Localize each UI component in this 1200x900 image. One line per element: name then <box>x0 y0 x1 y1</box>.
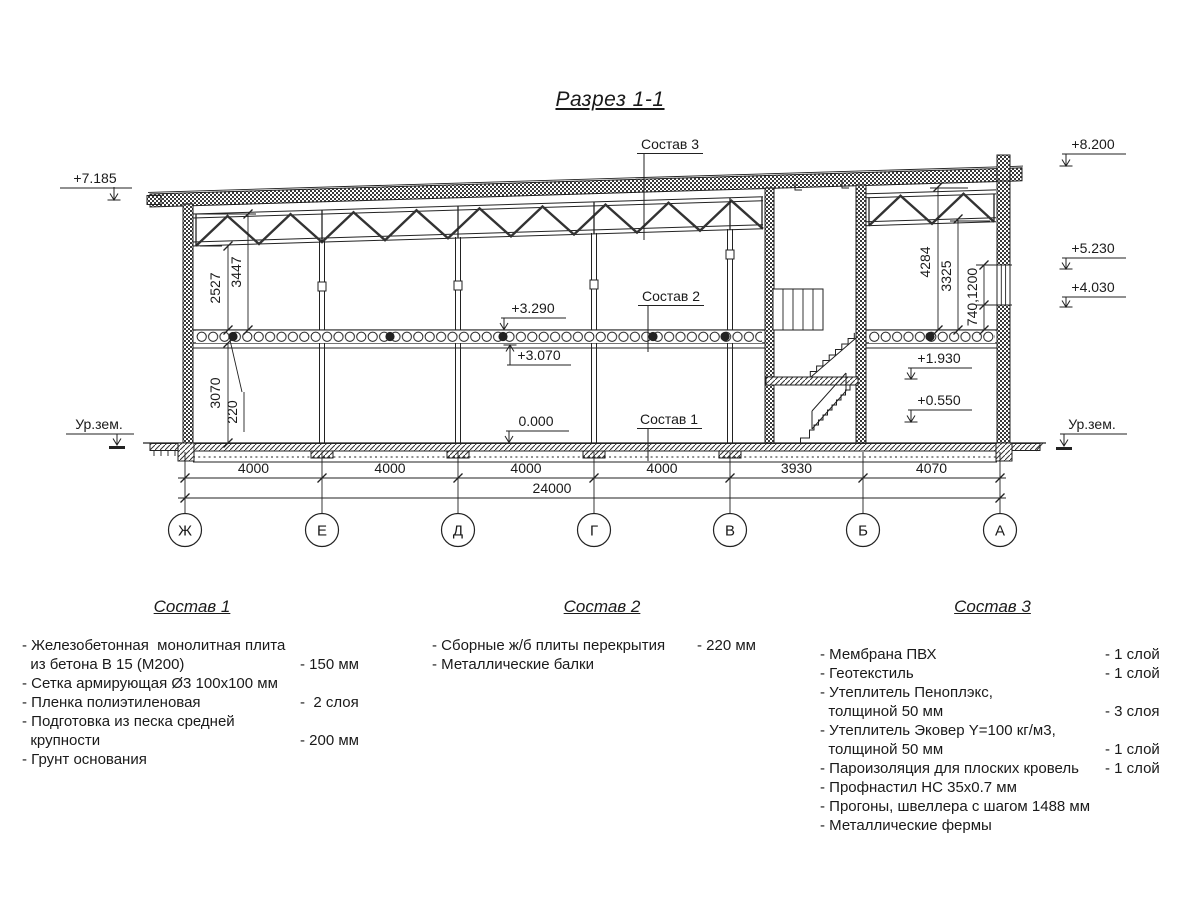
item-text: - Пароизоляция для плоских кровель <box>820 760 1079 777</box>
item-value: - 1 слой <box>1105 740 1160 759</box>
list-item: - Прогоны, швеллера с шагом 1488 мм <box>820 797 1165 816</box>
right-parapet <box>997 155 1010 181</box>
axis-label: Д <box>453 523 463 540</box>
callout-label: Состав 3 <box>641 136 699 152</box>
item-text: - Металлические фермы <box>820 817 992 834</box>
item-text: - Утеплитель Пеноплэкс, <box>820 684 993 701</box>
item-value: - 220 мм <box>697 636 756 655</box>
list-item: толщиной 50 мм- 3 слоя <box>820 702 1165 721</box>
composition-3-title: Состав 3 <box>820 597 1165 616</box>
stair-upper-flight <box>804 333 854 377</box>
steel-truss-right <box>866 190 996 226</box>
elevation-value: +5.230 <box>1071 240 1114 256</box>
axis-bubble-zh: Ж <box>169 514 202 547</box>
item-text: - Профнастил НС 35x0.7 мм <box>820 779 1017 796</box>
item-value: - 1 слой <box>1105 645 1160 664</box>
right-wall-window <box>993 265 1012 305</box>
list-item: - Пароизоляция для плоских кровель- 1 сл… <box>820 759 1165 778</box>
item-text: - Металлические балки <box>432 656 594 673</box>
list-item: - Пленка полиэтиленовая- 2 слоя <box>22 693 362 712</box>
floor-slab <box>193 330 997 348</box>
list-item: - Профнастил НС 35x0.7 мм <box>820 778 1165 797</box>
list-item: - Металлические балки <box>432 655 772 674</box>
eave-gutter-block <box>147 196 161 205</box>
stair-upper-stringer <box>804 338 856 383</box>
axis-label: Ж <box>178 523 192 540</box>
left-wall-footing <box>178 443 194 461</box>
item-value: - 150 мм <box>300 655 359 674</box>
elevation-mark-7185: +7.185 <box>60 170 132 200</box>
stairwell <box>766 289 858 443</box>
steel-truss-left <box>193 197 763 246</box>
elevation-mark-0000: 0.000 <box>505 413 569 443</box>
elevation-value: +3.290 <box>511 300 554 316</box>
item-text: - Подготовка из песка средней <box>22 713 235 730</box>
right-vertical-dims: 4284 3325 740,1200 <box>917 183 996 335</box>
ground-level-label: Ур.зем. <box>75 416 123 432</box>
axis-bubble-v: В <box>714 514 747 547</box>
section-drawing: +7.185 +8.200 +5.230 +4.030 +3.290 <box>0 0 1200 575</box>
dim-span-2: 4000 <box>374 460 405 476</box>
dim-span-5: 3930 <box>781 460 812 476</box>
item-text: - Сетка армирующая Ø3 100x100 мм <box>22 675 278 692</box>
list-item: - Геотекстиль- 1 слой <box>820 664 1165 683</box>
item-value: - 2 слоя <box>300 693 359 712</box>
stair-landing <box>766 377 858 385</box>
list-item: - Железобетонная монолитная плита <box>22 636 362 655</box>
dim-2527: 2527 <box>207 272 223 303</box>
elevation-mark-3290: +3.290 <box>500 300 566 330</box>
item-text: - Геотекстиль <box>820 665 914 682</box>
item-text: толщиной 50 мм <box>820 703 943 720</box>
elevation-value: +8.200 <box>1071 136 1114 152</box>
item-value: - 3 слоя <box>1105 702 1160 721</box>
elevation-value: +1.930 <box>917 350 960 366</box>
axis-label: В <box>725 523 735 540</box>
column-splices <box>318 250 734 291</box>
elevation-mark-0550: +0.550 <box>905 392 973 422</box>
ground-level-mark-right: Ур.зем. <box>1056 416 1127 449</box>
axis-label: Е <box>317 523 327 540</box>
dim-span-1: 4000 <box>238 460 269 476</box>
composition-list-1: Состав 1 - Железобетонная монолитная пли… <box>22 597 362 769</box>
list-item: толщиной 50 мм- 1 слой <box>820 740 1165 759</box>
dim-span-3: 4000 <box>510 460 541 476</box>
dim-3447: 3447 <box>228 256 244 287</box>
dim-220: 220 <box>224 400 240 424</box>
item-value: - 1 слой <box>1105 664 1160 683</box>
right-wall-lower <box>997 305 1010 443</box>
item-text: - Грунт основания <box>22 751 147 768</box>
dim-total: 24000 <box>533 480 572 496</box>
elevation-mark-4030: +4.030 <box>1060 279 1127 307</box>
stairwell-right-wall <box>856 185 866 443</box>
axis-label: Б <box>858 523 868 540</box>
composition-list-3: Состав 3 - Мембрана ПВХ- 1 слой - Геотек… <box>820 597 1165 835</box>
elevation-value: +7.185 <box>73 170 116 186</box>
item-text: - Пленка полиэтиленовая <box>22 694 201 711</box>
list-item: - Подготовка из песка средней <box>22 712 362 731</box>
elevation-mark-1930: +1.930 <box>905 350 973 379</box>
right-apron <box>1010 444 1040 451</box>
stair-window <box>773 289 823 330</box>
horizontal-dims: 4000 4000 4000 4000 3930 4070 24000 <box>178 452 1006 514</box>
left-wall <box>183 204 193 443</box>
item-value: - 200 мм <box>300 731 359 750</box>
item-text: - Утеплитель Эковер Y=100 кг/м3, <box>820 722 1056 739</box>
item-text: - Железобетонная монолитная плита <box>22 637 285 654</box>
elevation-value: +0.550 <box>917 392 960 408</box>
axis-bubble-d: Д <box>442 514 475 547</box>
ground-level-mark-left: Ур.зем. <box>66 416 134 448</box>
list-item: крупности- 200 мм <box>22 731 362 750</box>
axis-bubble-g: Г <box>578 514 611 547</box>
callout-sostav-1: Состав 1 <box>637 411 702 461</box>
item-text: - Сборные ж/б плиты перекрытия <box>432 637 665 654</box>
roof <box>147 155 1023 207</box>
elevation-mark-5230: +5.230 <box>1060 240 1127 269</box>
item-text: толщиной 50 мм <box>820 741 943 758</box>
dim-span-6: 4070 <box>916 460 947 476</box>
dim-span-4: 4000 <box>646 460 677 476</box>
dim-4284: 4284 <box>917 246 933 277</box>
axis-bubble-b: Б <box>847 514 880 547</box>
axis-label: А <box>995 523 1005 540</box>
composition-1-title: Состав 1 <box>22 597 362 616</box>
callout-label: Состав 2 <box>642 288 700 304</box>
elevation-value: 0.000 <box>518 413 553 429</box>
list-item: - Утеплитель Эковер Y=100 кг/м3, <box>820 721 1165 740</box>
elevation-mark-8200: +8.200 <box>1060 136 1127 166</box>
list-item: - Металлические фермы <box>820 816 1165 835</box>
axis-bubble-e: Е <box>306 514 339 547</box>
axis-label: Г <box>590 523 598 540</box>
list-item: - Мембрана ПВХ- 1 слой <box>820 645 1165 664</box>
dim-740-1200: 740,1200 <box>964 268 980 327</box>
elevation-value: +3.070 <box>517 347 560 363</box>
callout-label: Состав 1 <box>640 411 698 427</box>
composition-list-2: Состав 2 - Сборные ж/б плиты перекрытия-… <box>432 597 772 674</box>
item-value: - 1 слой <box>1105 759 1160 778</box>
list-item: из бетона В 15 (М200)- 150 мм <box>22 655 362 674</box>
walls <box>183 181 1012 443</box>
item-text: крупности <box>22 732 100 749</box>
list-item: - Сборные ж/б плиты перекрытия- 220 мм <box>432 636 772 655</box>
list-item: - Грунт основания <box>22 750 362 769</box>
axis-bubble-a: А <box>984 514 1017 547</box>
elevation-value: +4.030 <box>1071 279 1114 295</box>
right-wall-upper <box>997 181 1010 265</box>
ground-level-label: Ур.зем. <box>1068 416 1116 432</box>
axis-bubbles: Ж Е Д Г В Б А <box>169 514 1017 547</box>
item-text: - Мембрана ПВХ <box>820 646 937 663</box>
right-wall-footing <box>996 443 1012 461</box>
list-item: - Сетка армирующая Ø3 100x100 мм <box>22 674 362 693</box>
dim-3325: 3325 <box>938 260 954 291</box>
item-text: из бетона В 15 (М200) <box>22 656 184 673</box>
list-item: - Утеплитель Пеноплэкс, <box>820 683 1165 702</box>
composition-2-title: Состав 2 <box>432 597 772 616</box>
item-text: - Прогоны, швеллера с шагом 1488 мм <box>820 798 1090 815</box>
section-drawing-sheet: Разрез 1-1 <box>0 0 1200 900</box>
dim-3070: 3070 <box>207 377 223 408</box>
